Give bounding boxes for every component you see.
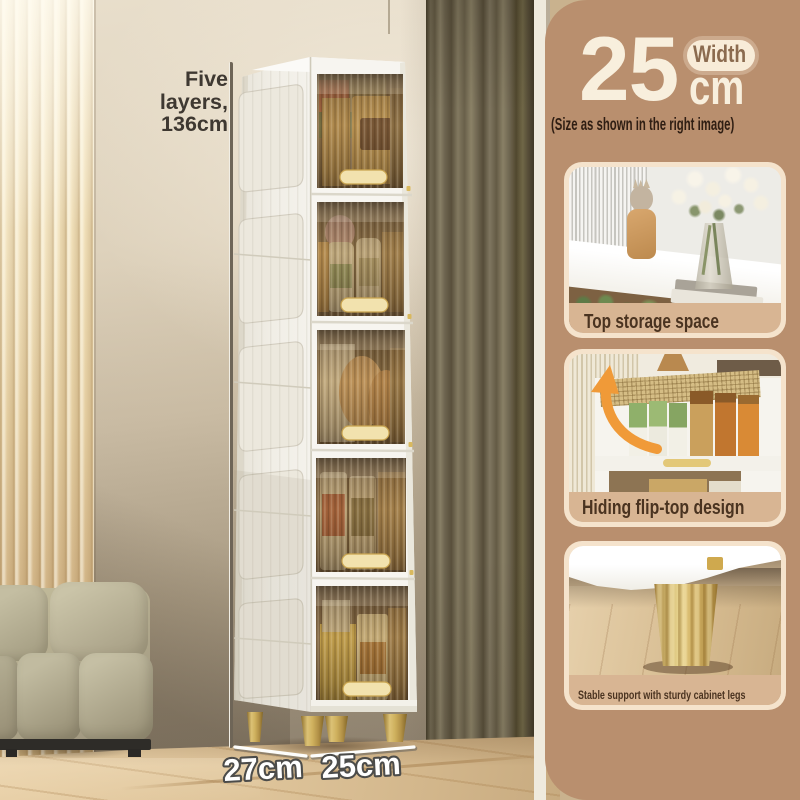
svg-text:27cm: 27cm [223, 749, 304, 788]
svg-text:25cm: 25cm [321, 746, 402, 785]
